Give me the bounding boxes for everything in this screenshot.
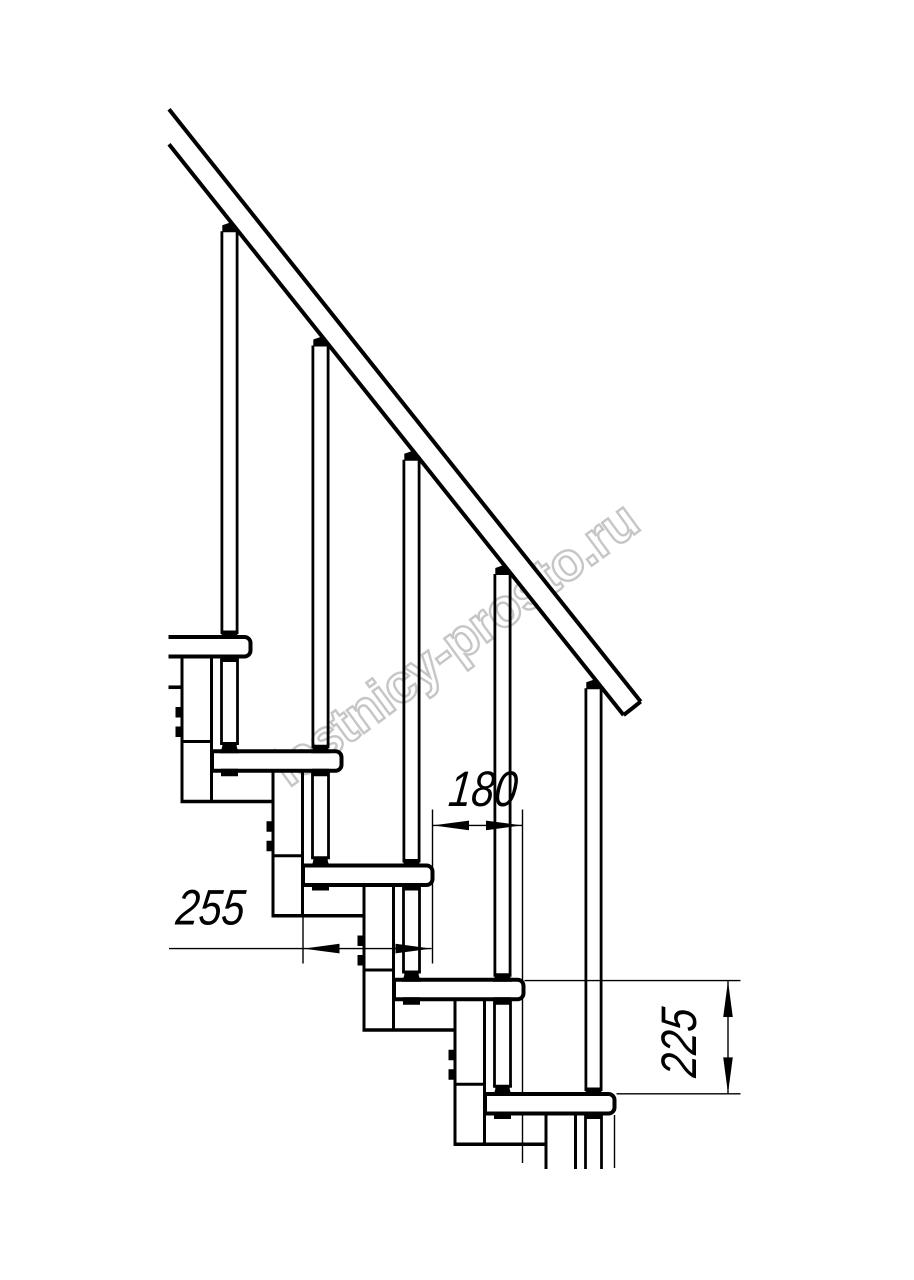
svg-text:225: 225 — [650, 1005, 707, 1081]
svg-text:255: 255 — [173, 879, 249, 936]
